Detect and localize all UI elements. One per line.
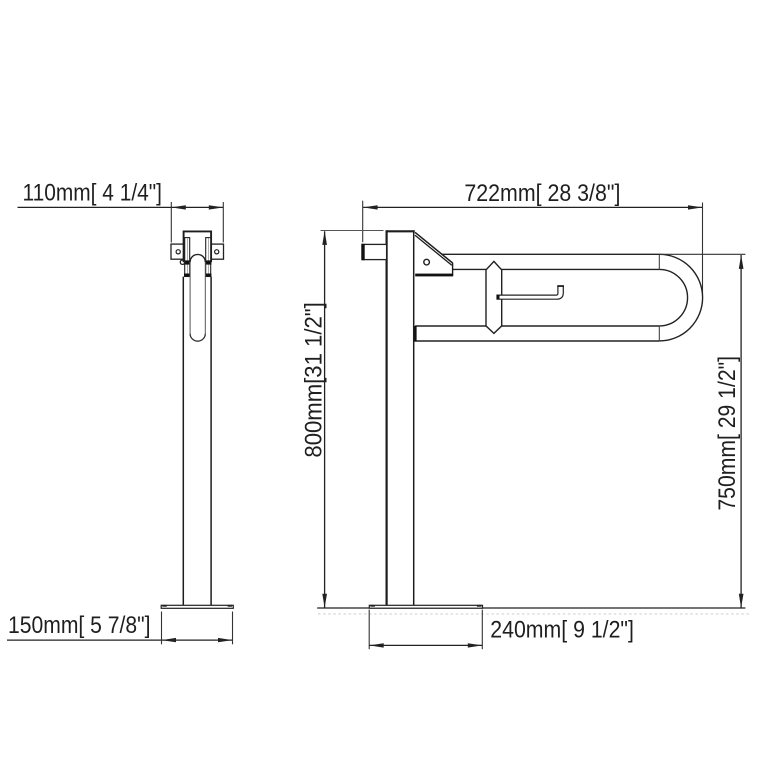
svg-text:150mm[ 5 7/8"]: 150mm[ 5 7/8"]: [8, 612, 151, 639]
svg-text:750mm[ 29 1/2"]: 750mm[ 29 1/2"]: [714, 356, 741, 511]
svg-text:240mm[ 9 1/2"]: 240mm[ 9 1/2"]: [490, 617, 634, 644]
svg-text:800mm[31 1/2"]: 800mm[31 1/2"]: [301, 302, 328, 457]
svg-text:722mm[ 28 3/8"]: 722mm[ 28 3/8"]: [464, 180, 620, 207]
svg-text:110mm[ 4 1/4"]: 110mm[ 4 1/4"]: [23, 180, 163, 207]
